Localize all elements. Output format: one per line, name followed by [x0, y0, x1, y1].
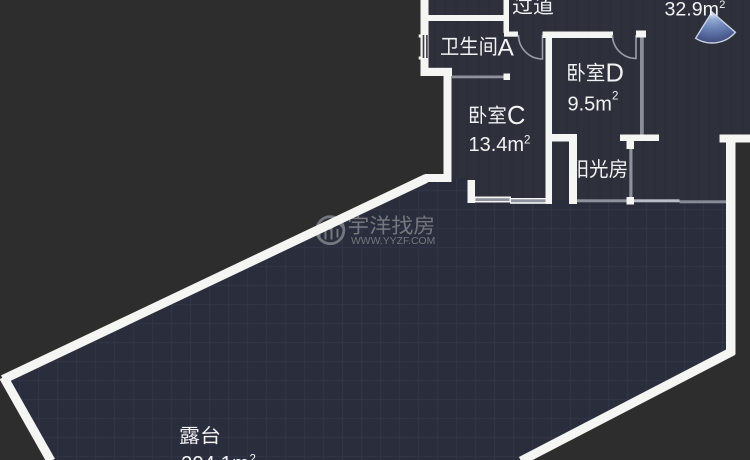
svg-text:D: D — [606, 59, 624, 87]
svg-text:2: 2 — [524, 135, 530, 147]
svg-text:2: 2 — [719, 0, 725, 11]
svg-text:2: 2 — [250, 454, 256, 460]
svg-text:294.1m: 294.1m — [181, 453, 249, 460]
svg-text:13.4m: 13.4m — [469, 134, 525, 156]
svg-text:A: A — [498, 35, 515, 62]
svg-text:WWW.YYZF.COM: WWW.YYZF.COM — [351, 236, 435, 247]
svg-text:32.9m: 32.9m — [665, 0, 719, 20]
svg-text:2: 2 — [612, 91, 618, 103]
svg-text:9.5m: 9.5m — [568, 94, 612, 116]
svg-text:C: C — [507, 102, 525, 130]
